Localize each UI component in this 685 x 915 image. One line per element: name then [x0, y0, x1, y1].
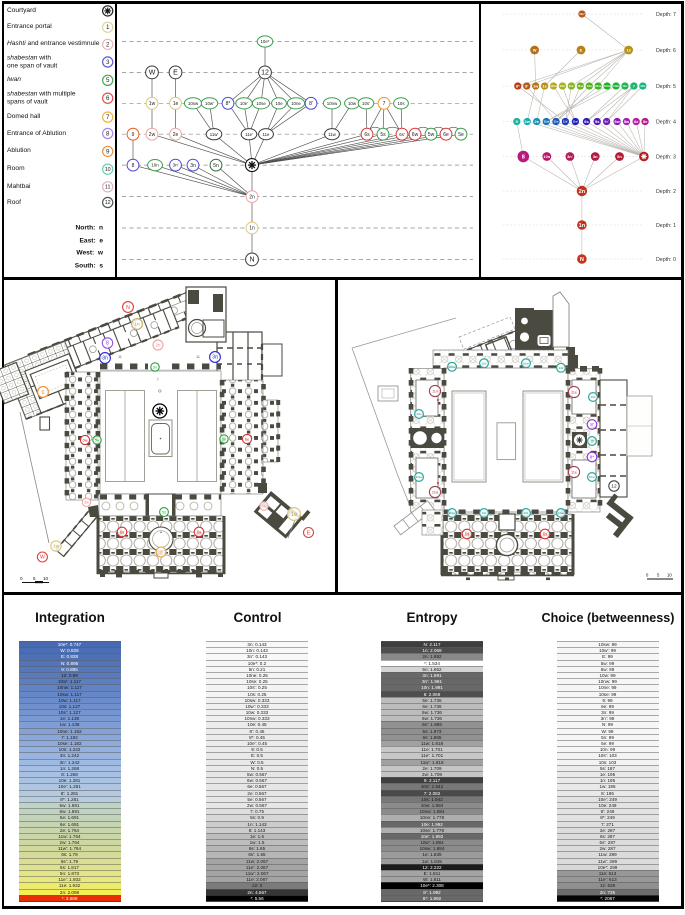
svg-text:8*: 8* [590, 455, 594, 460]
svg-text:10se: 10se [589, 475, 596, 479]
svg-text:5n: 5n [213, 163, 219, 169]
svg-text:6w: 6w [412, 132, 419, 138]
svg-text:7: 7 [383, 101, 386, 107]
svg-text:11e: 11e [571, 390, 577, 394]
svg-text:5e: 5e [222, 437, 226, 441]
svg-text:10s': 10s' [362, 101, 370, 106]
svg-text:2n: 2n [249, 194, 255, 200]
svg-text:8*: 8* [226, 101, 231, 107]
svg-text:10: 10 [43, 576, 49, 581]
svg-text:1w: 1w [533, 83, 539, 88]
svg-text:12: 12 [105, 200, 111, 206]
svg-text:10sw: 10sw [550, 84, 557, 88]
svg-text:5n: 5n [153, 365, 157, 369]
svg-text:1n: 1n [134, 322, 140, 327]
svg-text:Depth: 6: Depth: 6 [656, 48, 676, 54]
svg-text:6s': 6s' [605, 120, 609, 124]
svg-text:11w': 11w' [573, 120, 579, 124]
svg-text:10e: 10e [591, 395, 596, 399]
svg-text:9: 9 [106, 148, 110, 155]
svg-text:Depth: 2: Depth: 2 [656, 189, 676, 195]
svg-text:5w: 5w [428, 132, 435, 138]
svg-text:5: 5 [106, 77, 110, 84]
svg-text:10e*: 10e* [260, 39, 269, 44]
svg-text:2n: 2n [579, 189, 586, 195]
svg-text:6w: 6w [82, 437, 87, 442]
svg-text:10s': 10s' [622, 84, 627, 88]
svg-text:N: N [126, 305, 130, 311]
svg-text:6e: 6e [245, 436, 250, 441]
svg-text:Depth: 0: Depth: 0 [656, 257, 676, 263]
svg-text:8: 8 [106, 130, 110, 137]
svg-text:10e': 10e' [569, 84, 574, 88]
svg-text:1w: 1w [149, 101, 156, 107]
svg-text:12: 12 [611, 484, 617, 490]
svg-text:W: W [149, 70, 156, 77]
svg-text:10sw: 10sw [188, 101, 199, 106]
svg-text:12: 12 [626, 47, 631, 52]
svg-text:10w': 10w' [560, 84, 566, 88]
svg-text:E: E [307, 530, 311, 536]
svg-text:2w: 2w [525, 119, 531, 124]
svg-text:11: 11 [105, 185, 111, 191]
svg-text:7: 7 [160, 550, 163, 556]
svg-text:6s: 6s [120, 530, 124, 535]
svg-text:11: 11 [118, 355, 122, 359]
svg-text:11: 11 [196, 355, 200, 359]
svg-text:11e: 11e [571, 470, 577, 474]
svg-text:10nw: 10nw [449, 365, 457, 369]
svg-text:3n': 3n' [173, 163, 179, 168]
svg-text:11n: 11n [432, 389, 438, 393]
svg-text:8: 8 [522, 154, 525, 160]
svg-text:10e*: 10e* [579, 12, 585, 16]
svg-text:6s: 6s [584, 119, 589, 124]
svg-text:1: 1 [106, 24, 110, 31]
svg-text:10ne: 10ne [523, 361, 530, 365]
svg-text:11w: 11w [432, 490, 439, 494]
svg-text:6s': 6s' [399, 132, 405, 137]
svg-text:10n: 10n [151, 163, 159, 168]
svg-text:10w: 10w [348, 101, 357, 106]
svg-text:11w: 11w [328, 132, 337, 137]
svg-text:12: 12 [261, 70, 269, 77]
svg-text:10n: 10n [543, 154, 550, 159]
svg-text:2e: 2e [534, 119, 539, 124]
svg-text:N: N [249, 257, 254, 264]
svg-text:2: 2 [106, 41, 110, 48]
svg-text:2n: 2n [156, 343, 161, 348]
svg-text:1e: 1e [291, 512, 298, 518]
svg-text:5e: 5e [458, 132, 464, 138]
svg-text:Depth: 3: Depth: 3 [656, 154, 676, 160]
svg-text:5s: 5s [162, 510, 166, 514]
svg-text:▼: ▼ [436, 398, 440, 403]
svg-text:7: 7 [106, 114, 110, 121]
svg-text:6: 6 [106, 95, 110, 102]
svg-text:5: 5 [657, 573, 660, 578]
svg-text:10se: 10se [558, 511, 565, 515]
svg-text:0: 0 [646, 573, 649, 578]
svg-text:Depth: 5: Depth: 5 [656, 84, 676, 90]
svg-text:1n: 1n [249, 226, 255, 232]
svg-text:3n: 3n [212, 355, 218, 361]
svg-text:3n: 3n [190, 163, 196, 169]
svg-text:10e: 10e [275, 101, 283, 106]
svg-text:2w: 2w [149, 132, 156, 138]
svg-text:11e': 11e' [245, 132, 253, 137]
svg-text:1e: 1e [542, 83, 547, 88]
svg-text:10s: 10s [397, 101, 405, 106]
svg-text:10w': 10w' [205, 101, 214, 106]
svg-text:6s: 6s [543, 532, 547, 537]
svg-text:10: 10 [105, 167, 111, 173]
svg-text:10nw: 10nw [327, 101, 338, 106]
svg-text:10s: 10s [482, 511, 487, 515]
svg-text:2e: 2e [173, 132, 179, 138]
svg-text:0: 0 [20, 576, 23, 581]
svg-text:Depth: 7: Depth: 7 [656, 12, 676, 18]
svg-text:8: 8 [132, 163, 135, 169]
svg-text:▲: ▲ [159, 530, 162, 534]
svg-text:10ne: 10ne [291, 101, 301, 106]
svg-text:3n': 3n' [567, 154, 573, 159]
svg-text:3n: 3n [102, 356, 108, 362]
svg-text:Depth: 1: Depth: 1 [656, 223, 676, 229]
svg-text:10e: 10e [559, 366, 564, 370]
svg-text:1n: 1n [579, 223, 586, 229]
svg-text:2w: 2w [84, 501, 89, 505]
svg-text:8*: 8* [516, 83, 520, 88]
svg-text:5e: 5e [643, 119, 648, 124]
svg-text:8: 8 [106, 341, 109, 347]
svg-text:9: 9 [132, 132, 135, 138]
svg-text:11w': 11w' [210, 132, 219, 137]
svg-text:1e: 1e [173, 101, 179, 107]
svg-text:5s: 5s [380, 132, 386, 138]
svg-text:8': 8' [309, 101, 313, 107]
svg-text:11e': 11e' [563, 120, 568, 124]
svg-text:6e: 6e [443, 132, 449, 138]
svg-text:1w: 1w [53, 544, 60, 549]
svg-text:10se: 10se [256, 101, 266, 106]
svg-text:W: W [40, 555, 45, 561]
svg-text:10s: 10s [640, 84, 645, 88]
svg-text:Depth: 4: Depth: 4 [656, 119, 676, 125]
svg-text:▼: ▼ [436, 481, 440, 486]
svg-text:10w: 10w [613, 84, 619, 88]
svg-text:10se: 10se [577, 84, 583, 88]
svg-text:6w: 6w [614, 119, 620, 124]
svg-text:E: E [173, 70, 178, 77]
svg-text:10nw: 10nw [604, 84, 612, 88]
svg-text:10n: 10n [482, 361, 487, 365]
svg-text:10ne: 10ne [595, 84, 602, 88]
svg-text:10e': 10e' [240, 101, 248, 106]
svg-text:N: N [580, 257, 584, 263]
svg-text:9: 9 [42, 390, 45, 396]
svg-text:2e: 2e [262, 504, 266, 508]
svg-text:8': 8' [525, 83, 528, 88]
svg-text:11e: 11e [263, 132, 271, 137]
svg-text:5w: 5w [624, 119, 630, 124]
svg-text:10sw: 10sw [416, 475, 424, 479]
svg-text:6s: 6s [364, 132, 370, 138]
svg-text:10: 10 [667, 573, 672, 578]
svg-text:11w: 11w [543, 120, 549, 124]
svg-text:3: 3 [106, 59, 110, 66]
svg-text:10s: 10s [524, 511, 529, 515]
svg-text:6s: 6s [197, 530, 201, 535]
svg-text:8': 8' [590, 422, 593, 427]
svg-text:E: E [580, 47, 583, 52]
svg-text:10e: 10e [587, 84, 592, 88]
svg-text:5s: 5s [595, 119, 600, 124]
svg-text:6s: 6s [465, 532, 469, 537]
svg-text:11e: 11e [554, 120, 559, 124]
svg-text:10sw: 10sw [449, 511, 457, 515]
svg-text:10: 10 [590, 439, 594, 443]
svg-text:5n: 5n [617, 154, 622, 159]
svg-text:5w: 5w [95, 438, 100, 442]
svg-text:W: W [533, 47, 537, 52]
svg-text:6e: 6e [634, 119, 639, 124]
svg-text:5: 5 [33, 576, 36, 581]
svg-text:3n: 3n [593, 154, 598, 159]
